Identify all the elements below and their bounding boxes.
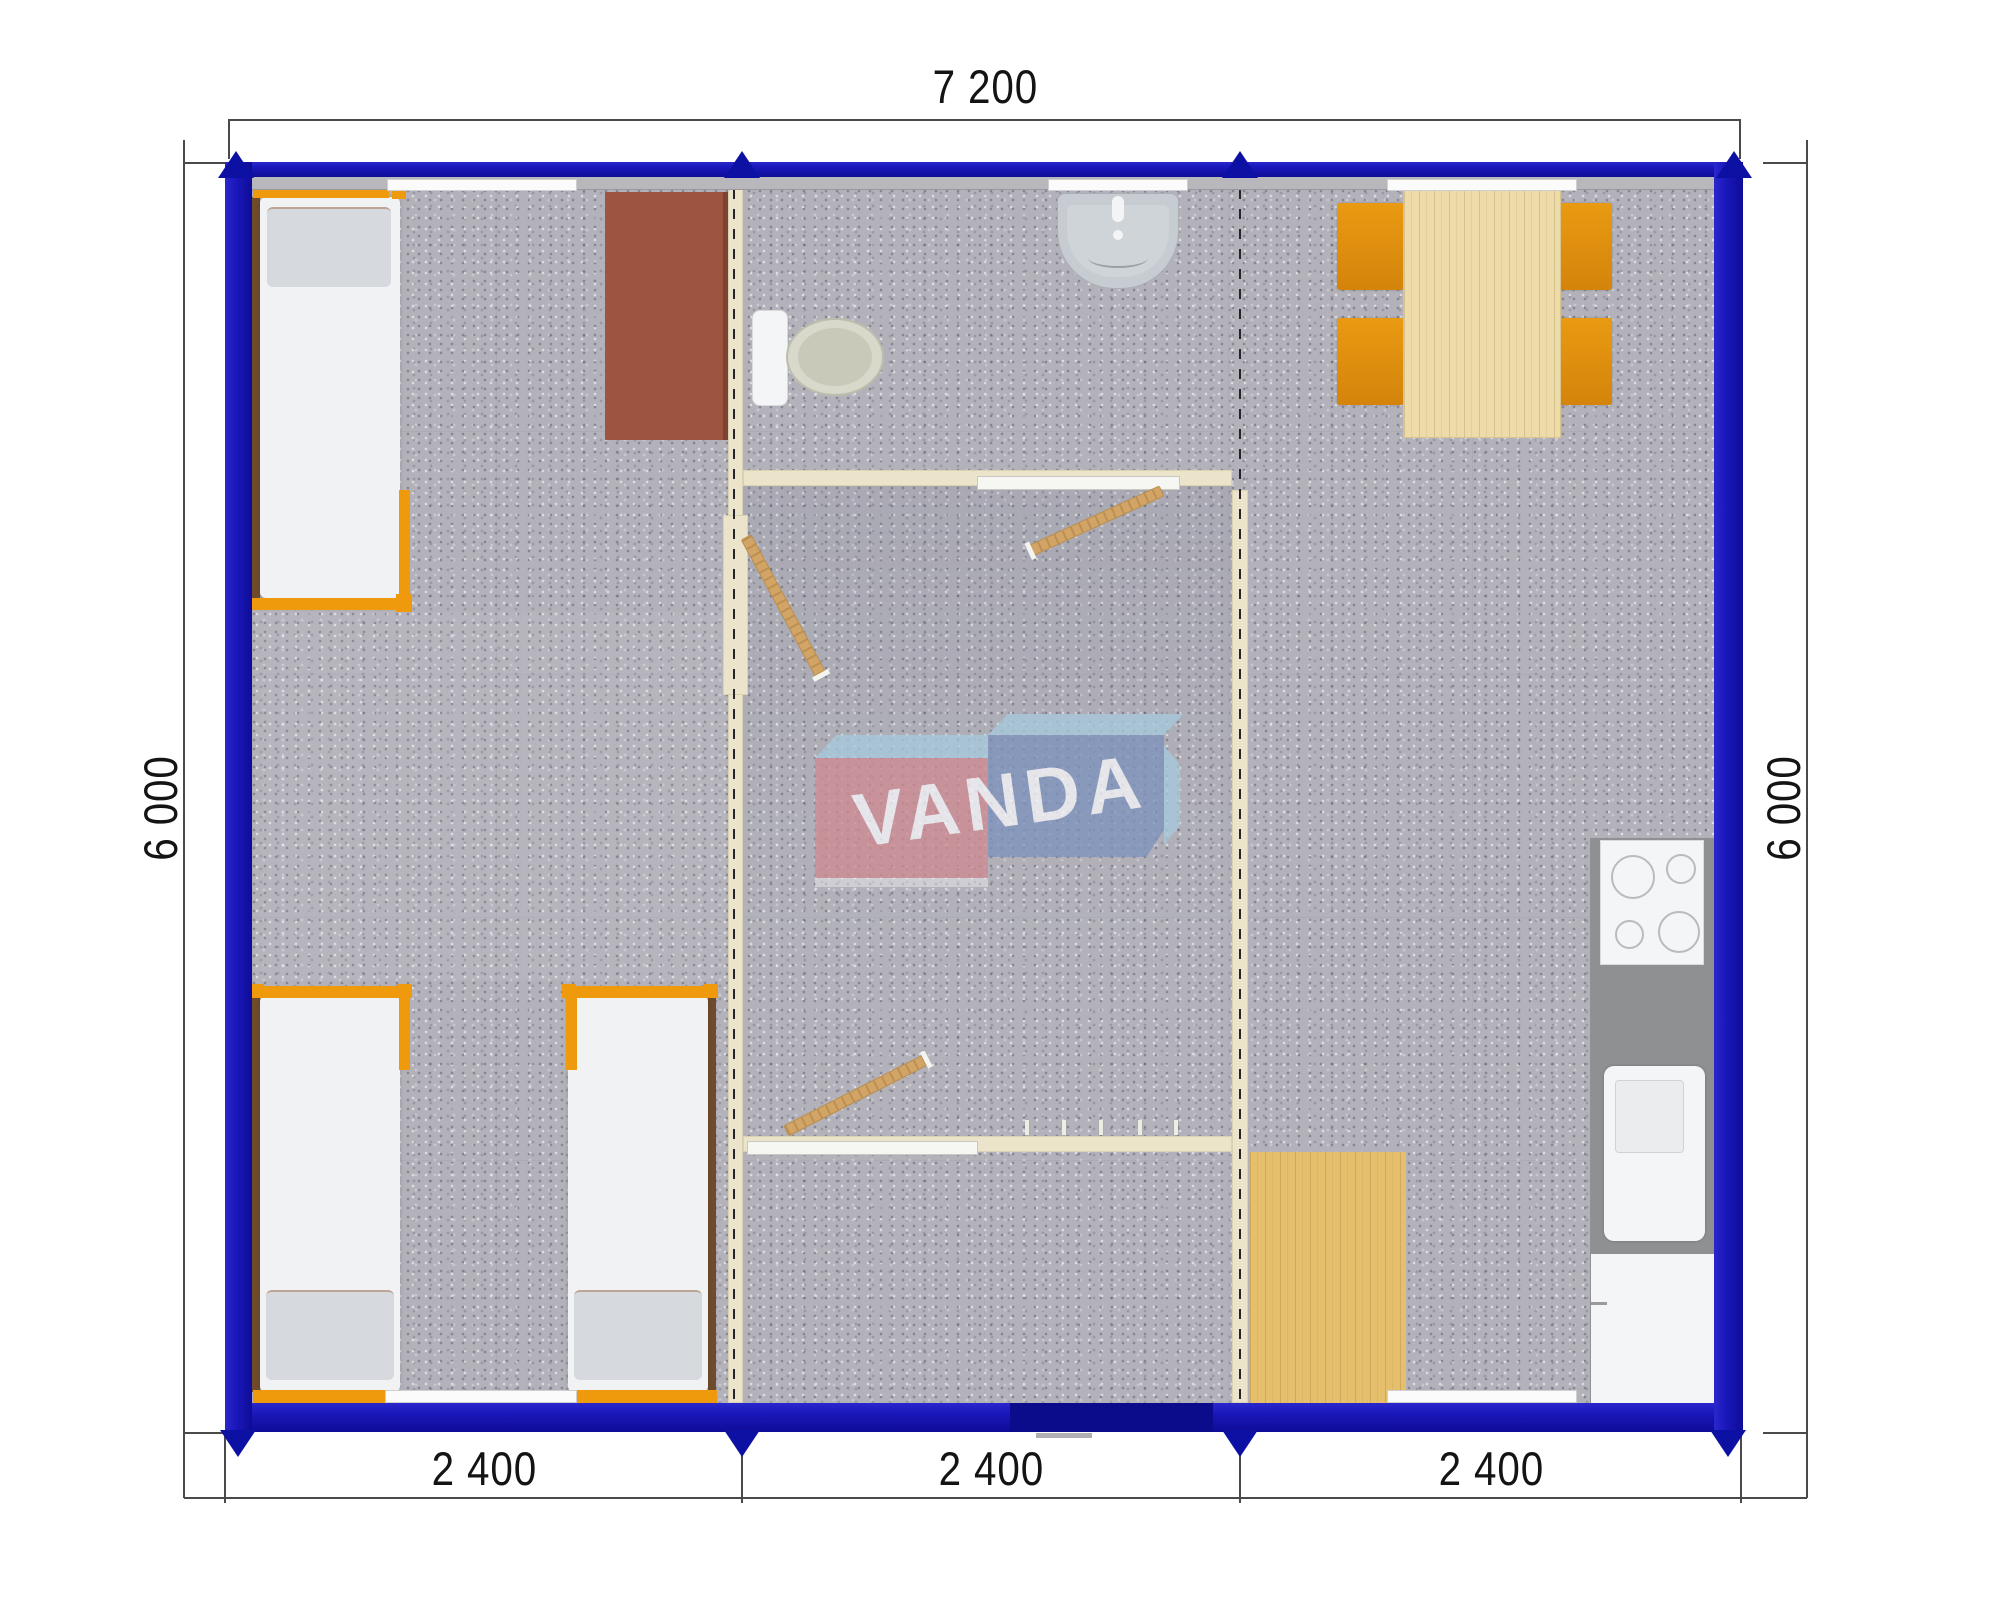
bed-frame-bar bbox=[253, 189, 389, 198]
bed-frame-bar bbox=[566, 998, 577, 1070]
toilet-tank bbox=[752, 310, 788, 406]
burner bbox=[1615, 920, 1644, 949]
coat-hook bbox=[1025, 1120, 1029, 1135]
faucet-icon bbox=[1112, 196, 1124, 222]
bed-frame-bar bbox=[253, 1390, 403, 1403]
burner bbox=[1666, 854, 1696, 884]
dim-top-label: 7 200 bbox=[885, 58, 1085, 114]
dim-bottom-line bbox=[184, 1497, 1807, 1499]
dim-left-label: 6 000 bbox=[100, 748, 220, 868]
junction-marker bbox=[1222, 1430, 1258, 1457]
dim-tick bbox=[1763, 1432, 1806, 1434]
kitchen-sink-basin bbox=[1615, 1080, 1684, 1153]
exterior-wall-top bbox=[225, 162, 1743, 177]
exterior-wall-right bbox=[1714, 162, 1743, 1432]
burner bbox=[1611, 855, 1655, 899]
toilet-seat bbox=[798, 328, 872, 386]
floor-plan-canvas: 7 200 6 000 6 000 2 400 2 400 2 400 VAND… bbox=[0, 0, 2000, 1597]
burner bbox=[1658, 911, 1700, 953]
bed-pillow bbox=[574, 1290, 702, 1380]
bed-frame-post bbox=[250, 984, 264, 998]
bed-frame-bar bbox=[562, 986, 718, 998]
bed-side-rail bbox=[252, 197, 260, 598]
junction-marker bbox=[724, 151, 760, 178]
left-room-light-patch bbox=[260, 612, 725, 980]
junction-marker bbox=[218, 151, 254, 178]
bed-frame-post bbox=[704, 984, 718, 998]
bed-pillow bbox=[267, 207, 391, 287]
vanda-watermark-logo: VANDA bbox=[805, 705, 1205, 895]
window-sill-top-middle bbox=[1048, 179, 1188, 191]
entrance-threshold bbox=[1036, 1433, 1092, 1438]
dim-tick bbox=[1763, 162, 1806, 164]
chair-top-left bbox=[1337, 203, 1404, 290]
chair-top-right bbox=[1552, 203, 1612, 290]
bed-frame-bar bbox=[399, 490, 410, 600]
junction-marker bbox=[724, 1430, 760, 1457]
faucet-dot bbox=[1113, 230, 1123, 240]
dim-top-line bbox=[229, 119, 1740, 121]
module-junction-line-left bbox=[733, 189, 735, 1403]
module-junction-line-right bbox=[1239, 189, 1241, 1403]
window-sill-top-right bbox=[1387, 179, 1577, 191]
coat-hook bbox=[1138, 1120, 1142, 1135]
junction-marker bbox=[1710, 1430, 1746, 1457]
bed-frame-post bbox=[562, 984, 576, 998]
vestibule-door-opening bbox=[747, 1141, 978, 1155]
coat-hook bbox=[1174, 1120, 1178, 1135]
bed-frame-bar bbox=[252, 598, 404, 610]
bed-side-rail bbox=[708, 998, 716, 1392]
entrance-door bbox=[1010, 1403, 1213, 1432]
exterior-wall-bottom bbox=[225, 1403, 1743, 1432]
kitchen-cabinet bbox=[1591, 1254, 1714, 1403]
desk bbox=[605, 192, 728, 440]
bed-side-rail bbox=[252, 998, 260, 1392]
coat-hook bbox=[1062, 1120, 1066, 1135]
bathroom-door-opening bbox=[977, 476, 1180, 490]
window-sill-top-left bbox=[387, 179, 577, 191]
dining-table bbox=[1403, 190, 1561, 438]
junction-marker bbox=[220, 1430, 256, 1457]
bed-frame-post bbox=[396, 594, 412, 612]
cabinet-handle bbox=[1591, 1302, 1607, 1305]
bed-frame-post bbox=[398, 984, 412, 998]
window-sill-bottom-left bbox=[385, 1390, 577, 1403]
junction-marker bbox=[1222, 151, 1258, 178]
bed-frame-bar bbox=[250, 986, 412, 998]
washbasin-drain-curve bbox=[1088, 248, 1148, 268]
bed-pillow bbox=[266, 1290, 394, 1380]
junction-marker bbox=[1716, 151, 1752, 178]
coat-hook bbox=[1099, 1120, 1103, 1135]
chair-bottom-right bbox=[1552, 318, 1612, 405]
dim-bottom-label-1: 2 400 bbox=[384, 1442, 584, 1494]
wood-deck bbox=[1250, 1152, 1406, 1403]
exterior-wall-left bbox=[225, 162, 252, 1432]
dim-bottom-label-2: 2 400 bbox=[891, 1442, 1091, 1494]
module-junction-wall-left bbox=[728, 189, 743, 1403]
bed-frame-bar bbox=[399, 998, 410, 1070]
window-sill-bottom-right bbox=[1387, 1390, 1577, 1403]
dim-bottom-label-3: 2 400 bbox=[1391, 1442, 1591, 1494]
bed-frame-bar bbox=[565, 1390, 717, 1403]
chair-bottom-left bbox=[1337, 318, 1404, 405]
